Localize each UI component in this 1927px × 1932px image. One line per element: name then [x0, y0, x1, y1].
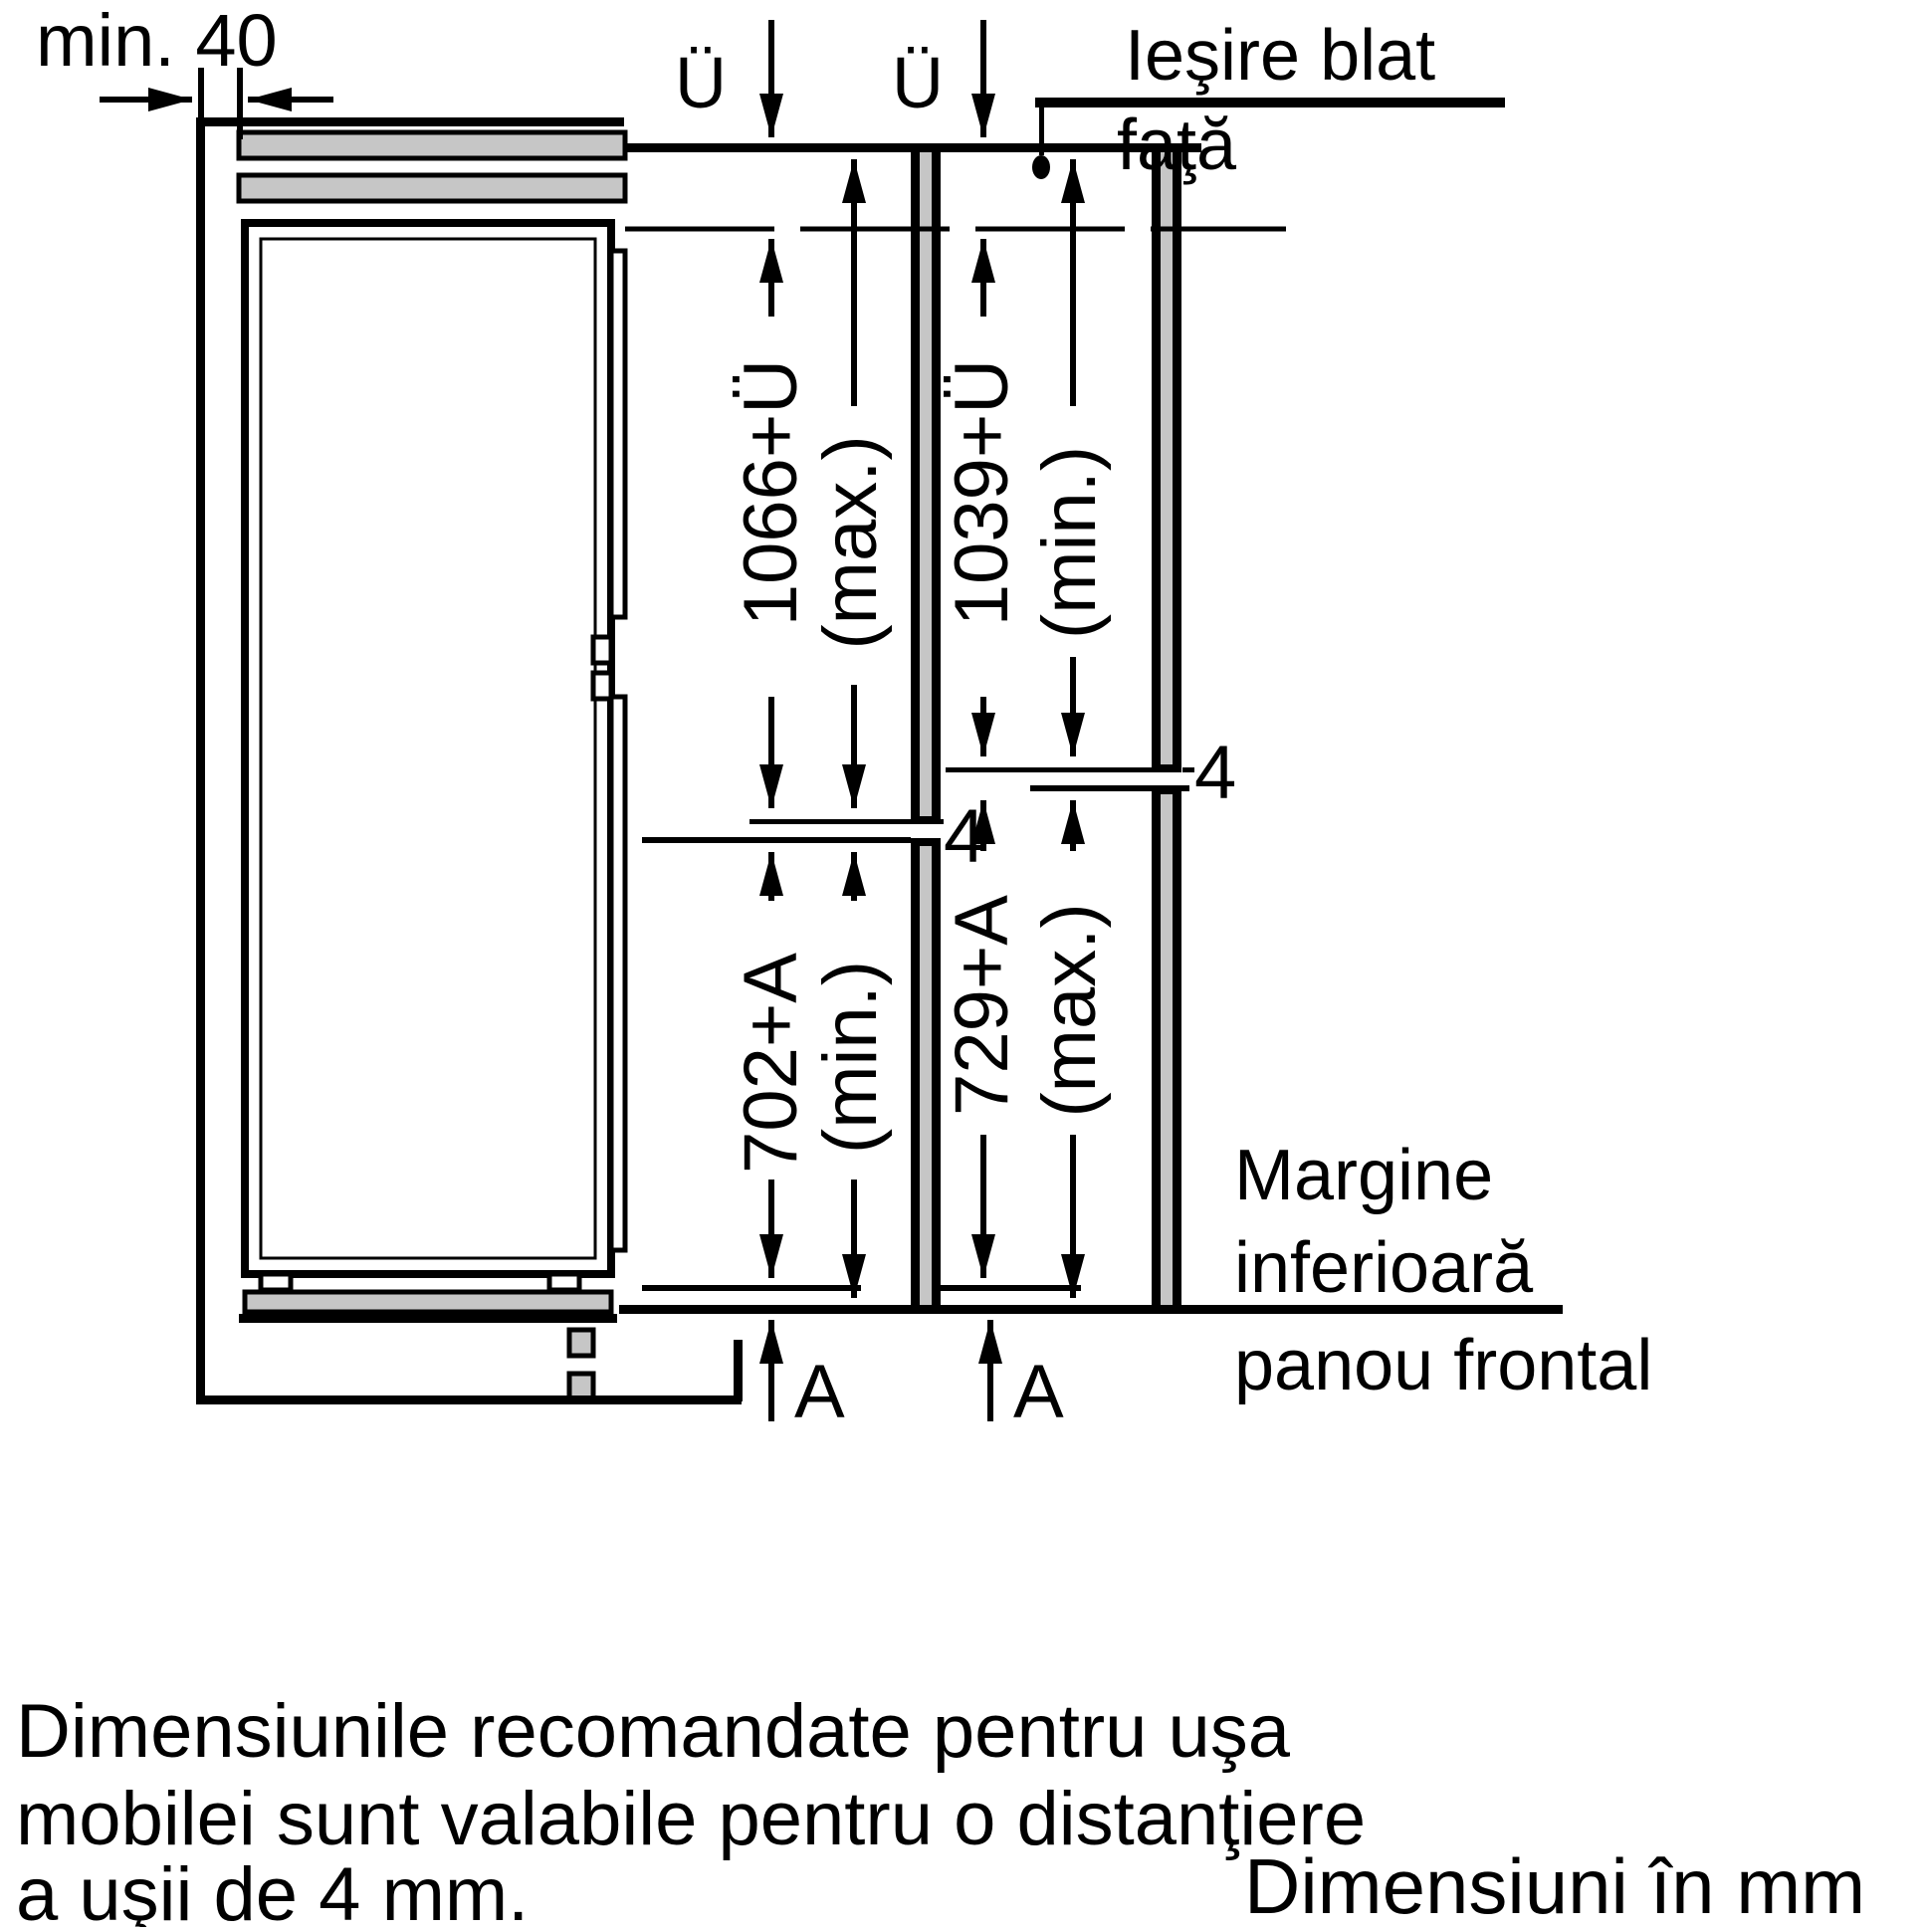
- appliance-foot-right: [549, 1274, 579, 1290]
- units-note: Dimensiuni în mm: [1244, 1842, 1865, 1927]
- door-left-upper-core: [920, 152, 932, 816]
- lower-door-left-value: 702+A: [729, 953, 813, 1174]
- upper-door-right-value: 1039+Ü: [940, 359, 1024, 626]
- dimension-lower-left: 702+A (min.): [729, 953, 893, 1298]
- worktop-label-line2: faţă: [1117, 106, 1237, 185]
- appliance-bottom-ref-line-left: [642, 1285, 861, 1291]
- a-label-right: A: [1013, 1350, 1064, 1434]
- upper-door-right-qualifier: (min.): [1027, 446, 1112, 639]
- upper-door-left-qualifier: (max.): [808, 435, 893, 649]
- door-panel-left-lower: [911, 838, 941, 1311]
- footer-note-line2: mobilei sunt valabile pentru o distanţie…: [16, 1777, 1366, 1861]
- installation-diagram-page: min. 40 Ü 10: [0, 0, 1927, 1927]
- base-vent-block-1: [569, 1330, 593, 1356]
- door-panel-right-upper: [1152, 149, 1181, 772]
- appliance-bottom-ref-line-right: [934, 1285, 1081, 1291]
- worktop-callout-line: [1039, 107, 1044, 155]
- top-vent-strip-1: [239, 132, 625, 158]
- overhang-label-right: Ü: [892, 44, 944, 123]
- gap-right-upper-line: [946, 767, 1152, 772]
- footer-note-line3: a uşii de 4 mm.: [16, 1852, 529, 1927]
- overhang-label-left: Ü: [675, 44, 727, 123]
- min40-label: min. 40: [36, 0, 278, 82]
- worktop-label-line1: Ieşire blat: [1125, 16, 1435, 96]
- appliance-door-front-lower: [611, 697, 625, 1250]
- door-panel-left-upper: [911, 149, 941, 824]
- panel-edge-label-line3: panou frontal: [1234, 1326, 1652, 1405]
- appliance-body-outline: [245, 223, 611, 1274]
- gap-right-upper-line-stub: [1182, 767, 1194, 772]
- plinth-bottom-line: [239, 1314, 617, 1323]
- appliance-foot-left: [261, 1274, 291, 1290]
- panel-edge-label-line2: inferioară: [1234, 1228, 1534, 1308]
- worktop-reference-line: [1035, 98, 1505, 107]
- bottom-a-references: A A: [771, 1320, 1064, 1434]
- cabinet-floor-line: [196, 1395, 742, 1404]
- worktop-callout: Ieşire blat faţă: [1032, 16, 1505, 185]
- appliance-door-front-upper: [611, 251, 625, 617]
- worktop-callout-dot: [1032, 155, 1050, 179]
- hinge-block-upper: [593, 637, 611, 663]
- lower-door-right-value: 729+A: [940, 895, 1024, 1116]
- floor-line-upturn: [734, 1340, 743, 1401]
- dimension-lower-right: 729+A (max.): [940, 895, 1112, 1298]
- cabinet-section: [196, 117, 743, 1404]
- plinth-strip: [245, 1292, 611, 1312]
- door-left-lower-core: [920, 846, 932, 1305]
- gap-left-lower-line: [642, 837, 911, 843]
- cabinet-top-line: [196, 117, 624, 126]
- top-vent-strip-2: [239, 175, 625, 201]
- hinge-block-lower: [593, 673, 611, 699]
- panel-edge-label-line1: Margine: [1234, 1136, 1493, 1215]
- door-right-lower-core: [1161, 794, 1173, 1305]
- dimension-upper-left: Ü 1066+Ü (max.): [675, 20, 893, 808]
- gap-label-right: 4: [1194, 731, 1236, 815]
- front-panel-edge-label: Margine inferioară panou frontal: [1234, 1136, 1652, 1405]
- door-panel-right-lower: [1152, 786, 1181, 1311]
- fridge-door-dimension-diagram: min. 40 Ü 10: [0, 0, 1927, 1927]
- gap-label-left: 4: [944, 794, 985, 879]
- lower-door-right-qualifier: (max.): [1027, 903, 1112, 1117]
- footer-notes: Dimensiunile recomandate pentru uşa mobi…: [16, 1689, 1865, 1927]
- door-right-upper-core: [1161, 152, 1173, 764]
- footer-note-line1: Dimensiunile recomandate pentru uşa: [16, 1689, 1291, 1774]
- lower-door-left-qualifier: (min.): [808, 961, 893, 1154]
- cabinet-side-wall-line: [196, 117, 205, 1403]
- upper-door-left-value: 1066+Ü: [729, 359, 813, 626]
- a-label-left: A: [794, 1350, 845, 1434]
- gap-right-lower-line: [1030, 785, 1189, 791]
- gap-left-upper-line: [749, 819, 944, 824]
